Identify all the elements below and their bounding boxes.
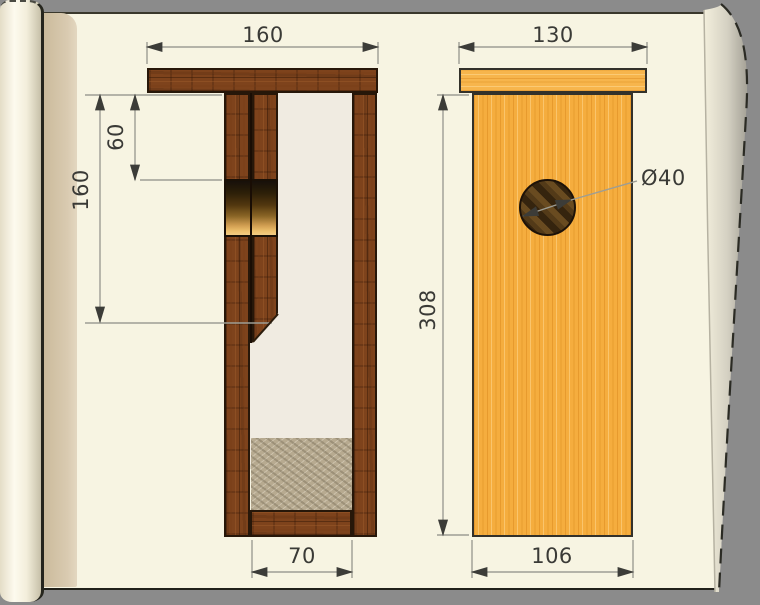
cavity-upper — [278, 93, 352, 315]
roof-board-front — [459, 68, 647, 93]
dim-front-panel-width: 106 — [520, 545, 584, 567]
dim-front-board-length: 160 — [70, 158, 92, 222]
front-wall-outer-board — [224, 93, 250, 537]
sand-fill — [251, 438, 352, 510]
front-panel — [472, 93, 633, 537]
backdrop-right — [719, 4, 760, 592]
curl-torn-edge — [719, 4, 747, 592]
dim-body-height: 308 — [417, 278, 439, 342]
dim-overall-width: 160 — [231, 24, 295, 46]
dim-roof-width: 130 — [521, 24, 585, 46]
board-gap-line — [250, 93, 252, 343]
plan-page: { "drawing": { "type": "nest-box woodwor… — [0, 0, 760, 605]
paper-roll-left — [0, 0, 44, 602]
dim-inner-floor-width: 70 — [270, 545, 334, 567]
roll-shadow — [44, 13, 77, 587]
back-wall-board — [352, 93, 377, 537]
entrance-hole — [519, 179, 576, 236]
roof-board-section — [147, 68, 378, 93]
floor-board — [250, 510, 352, 537]
dim-entrance-hole-diameter: Ø40 — [641, 167, 721, 189]
dim-entrance-offset: 60 — [105, 105, 127, 169]
